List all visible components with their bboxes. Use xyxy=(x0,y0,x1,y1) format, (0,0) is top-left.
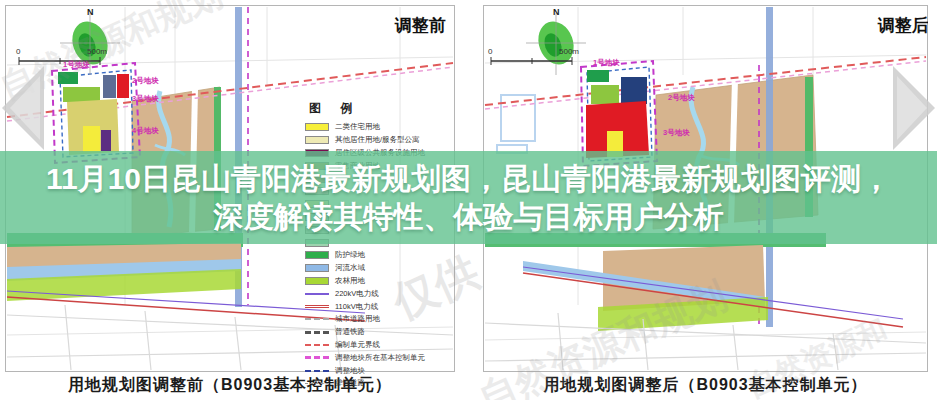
right-arrow-icon xyxy=(891,62,937,154)
legend-swatch xyxy=(305,305,329,308)
svg-text:2号地块: 2号地块 xyxy=(668,93,695,102)
legend-item: 河流水域 xyxy=(305,262,465,275)
left-arrow-icon xyxy=(0,62,46,154)
legend-swatch xyxy=(305,383,329,384)
legend-swatch xyxy=(305,123,329,131)
legend-item: 农林用地 xyxy=(305,275,465,288)
legend-swatch xyxy=(305,136,329,144)
map-after-corner-label: 调整后 xyxy=(877,16,928,35)
parcel-green xyxy=(587,70,609,82)
parcel-slate xyxy=(103,75,116,98)
legend-item: 弹性道路 xyxy=(305,377,465,390)
legend-label: 调整地块所在基本控制单元 xyxy=(335,353,425,363)
svg-text:1号地块: 1号地块 xyxy=(63,60,90,69)
legend-swatch xyxy=(305,344,329,346)
map-before-corner-label: 调整前 xyxy=(394,16,446,35)
hero-carousel: N 0 500m 1号地块 2号地块 3号地块 4号地块 调整前 图 例 二 xyxy=(0,0,937,400)
svg-text:0: 0 xyxy=(488,47,493,56)
svg-text:500m: 500m xyxy=(87,47,107,56)
legend-swatch xyxy=(305,370,329,372)
legend-label: 其他居住用地/服务型公寓 xyxy=(335,135,420,145)
legend-before: 图 例 二类住宅用地其他居住用地/服务型公寓居住区级公共服务设施用地零售商业用地… xyxy=(305,100,465,390)
legend-swatch xyxy=(305,356,329,359)
legend-item: 调整地块所在基本控制单元 xyxy=(305,351,465,364)
svg-text:1号地块: 1号地块 xyxy=(593,58,620,67)
caption-map-after: 用地规划图调整后（B0903基本控制单元） xyxy=(483,374,928,396)
carousel-prev-button[interactable] xyxy=(0,62,46,154)
title-line-1: 11月10日昆山青阳港最新规划图，昆山青阳港最新规划图评测， xyxy=(46,160,891,198)
title-overlay-band: 11月10日昆山青阳港最新规划图，昆山青阳港最新规划图评测， 深度解读其特性、体… xyxy=(0,151,937,244)
legend-item: 防护绿地 xyxy=(305,249,465,262)
parcel-yellow xyxy=(83,126,100,152)
parcel-lime xyxy=(591,85,619,104)
legend-swatch xyxy=(305,277,329,285)
svg-text:3号地块: 3号地块 xyxy=(663,128,690,137)
legend-label: 调整地块 xyxy=(335,366,365,376)
svg-text:500m: 500m xyxy=(559,47,579,56)
legend-item: 调整地块 xyxy=(305,364,465,377)
legend-swatch xyxy=(305,264,329,272)
legend-swatch xyxy=(305,251,329,259)
legend-label: 普通铁路 xyxy=(335,327,365,337)
parcel-lime xyxy=(63,87,100,102)
legend-item: 二类住宅用地 xyxy=(305,121,465,134)
svg-text:2号地块: 2号地块 xyxy=(132,76,159,85)
legend-label: 编制单元界线 xyxy=(335,340,380,350)
legend-label: 110kV电力线 xyxy=(335,302,378,312)
parcel-purple xyxy=(101,130,111,151)
legend-label: 220kV电力线 xyxy=(335,289,379,299)
svg-text:3号地块: 3号地块 xyxy=(132,94,159,103)
legend-item: 普通铁路 xyxy=(305,326,465,339)
legend-label: 农林用地 xyxy=(335,276,365,286)
legend-swatch xyxy=(305,318,329,320)
legend-label: 城市道路用地 xyxy=(335,314,380,324)
carousel-next-button[interactable] xyxy=(891,62,937,154)
legend-header: 图 例 xyxy=(309,100,465,117)
legend-label: 河流水域 xyxy=(335,263,365,273)
legend-item: 110kV电力线 xyxy=(305,300,465,313)
legend-swatch xyxy=(305,293,329,295)
parcel-navy xyxy=(621,77,647,104)
legend-item: 编制单元界线 xyxy=(305,339,465,352)
parcel-red xyxy=(117,74,129,98)
svg-text:N: N xyxy=(87,7,94,17)
title-line-2: 深度解读其特性、体验与目标用户分析 xyxy=(214,198,724,236)
svg-text:4号地块: 4号地块 xyxy=(132,126,159,135)
legend-item: 城市道路用地 xyxy=(305,313,465,326)
parcel-green xyxy=(58,72,78,84)
legend-label: 二类住宅用地 xyxy=(335,122,380,132)
svg-text:0: 0 xyxy=(16,47,21,56)
legend-swatch xyxy=(305,331,329,334)
legend-item: 其他居住用地/服务型公寓 xyxy=(305,134,465,147)
legend-label: 弹性道路 xyxy=(335,378,365,388)
legend-item: 220kV电力线 xyxy=(305,287,465,300)
svg-text:N: N xyxy=(553,7,560,17)
legend-label: 防护绿地 xyxy=(335,250,365,260)
